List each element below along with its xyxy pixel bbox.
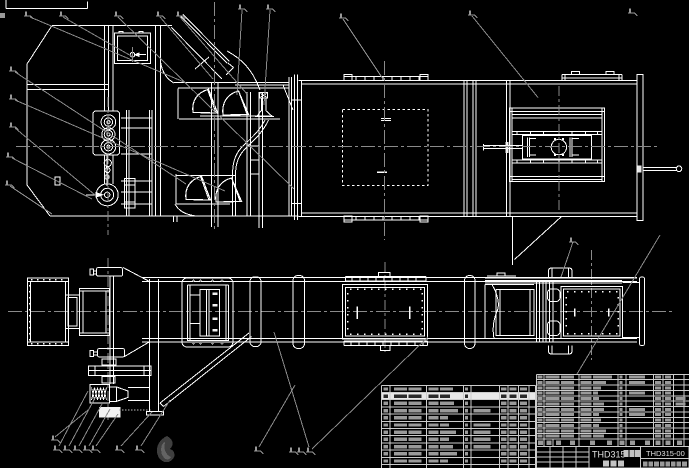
svg-text:THD315-00: THD315-00	[646, 449, 685, 458]
svg-text:THD315: THD315	[592, 450, 626, 460]
